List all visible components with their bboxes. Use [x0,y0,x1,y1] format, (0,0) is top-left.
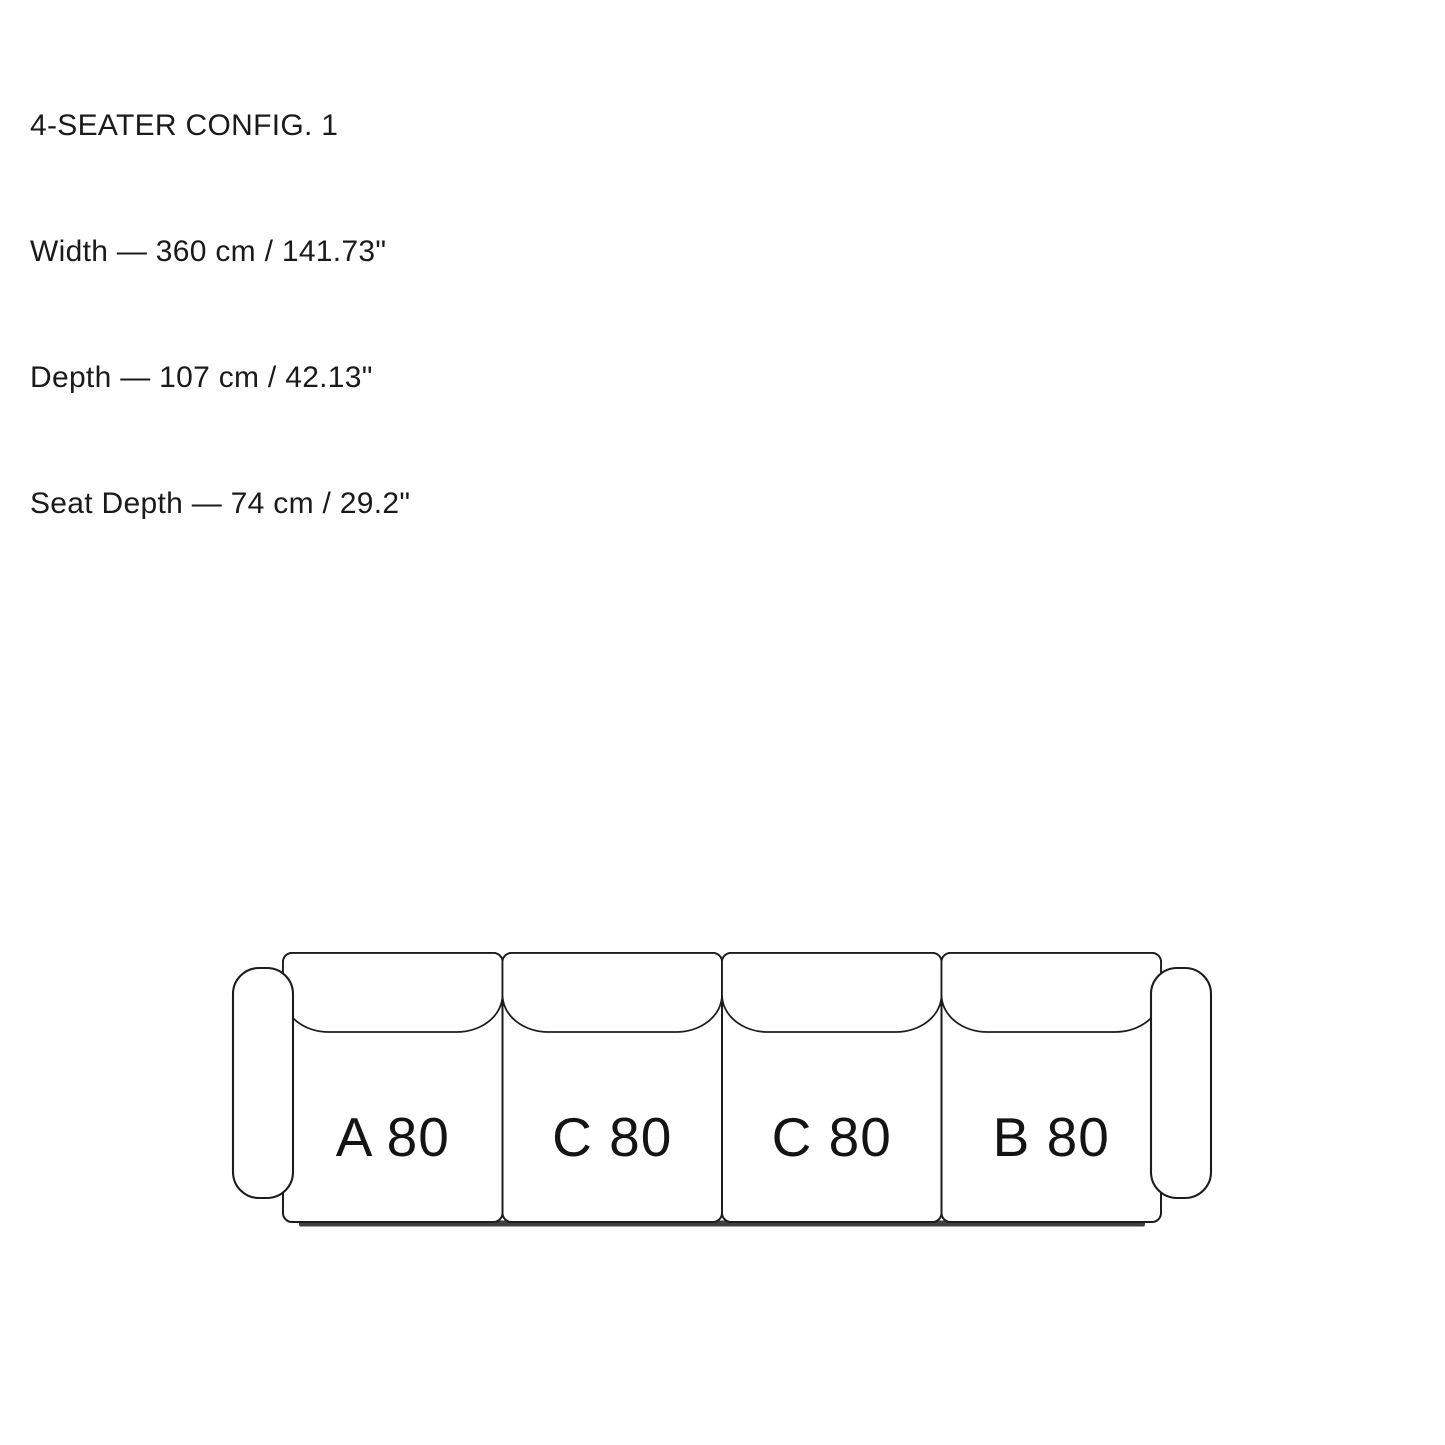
sofa-module-3: C 80 [722,953,942,1222]
sofa-top-view-diagram: A 80 C 80 C 80 B 80 [0,0,1445,1445]
left-armrest [233,968,293,1198]
sofa-module-2: C 80 [503,953,723,1222]
back-cushion [283,953,503,1032]
module-label: C 80 [552,1106,672,1168]
back-cushion [503,953,723,1032]
module-label: A 80 [336,1106,450,1168]
module-label: B 80 [993,1106,1110,1168]
back-cushion [942,953,1162,1032]
product-config-sheet: 4-SEATER CONFIG. 1 Width — 360 cm / 141.… [0,0,1445,1445]
back-cushion [722,953,942,1032]
right-armrest [1151,968,1211,1198]
sofa-module-1: A 80 [283,953,503,1222]
module-label: C 80 [772,1106,892,1168]
sofa-module-4: B 80 [942,953,1162,1222]
